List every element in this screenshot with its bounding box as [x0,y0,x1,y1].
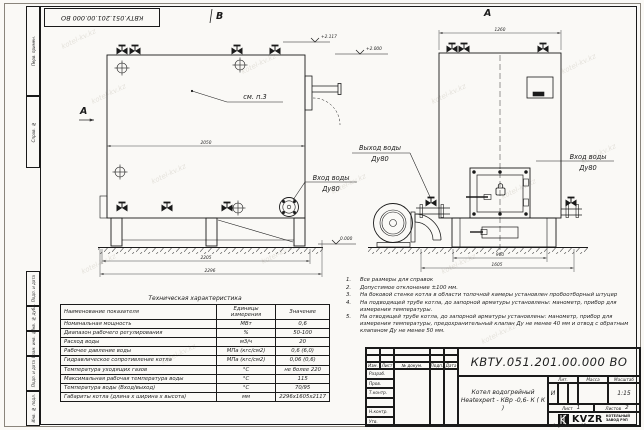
tech-col-units: Единицы измерения [216,305,275,320]
left-view-fittings [113,46,281,216]
dim-1260: 1260 [495,27,506,33]
tech-param: Габариты котла (длина х ширина х высота) [61,392,217,401]
tb-scale-header: Масштаб [608,376,640,383]
view-a-label: A [483,8,491,19]
tech-col-name: Наименование показателя [61,305,217,320]
tb-row-nkontr: Н.контр. [366,407,394,417]
product-name-line2: Heatexpert - КВр -0,6- К ( К ) [459,397,547,413]
ground-lines [98,248,588,255]
sheets-label: Листов [605,406,621,411]
table-row: Максимальная рабочая температура воды°С1… [61,374,330,383]
tech-table-header-row: Наименование показателя Единицы измерени… [61,305,330,320]
table-row: Габариты котла (длина х ширина х высота)… [61,392,330,401]
tb-col-data: Дата [444,362,458,369]
note-item: 3.На боковой стенке котла в области топо… [346,292,632,299]
tech-units: м3/ч [216,338,275,347]
sheets-value: 2 [625,405,629,411]
blower-fan [374,204,442,248]
label-water-outlet: Выход воды Ду80 [352,144,431,199]
tech-value: 50-100 [276,329,330,338]
inlet-left-label-line2: Ду80 [321,185,339,193]
tb-product-name: Котел водогрейный Heatexpert - КВр -0,6-… [458,376,548,426]
tech-param: Гидравлическое сопротивление котла [61,356,217,365]
dim-1605: 1605 [492,262,503,268]
dim-2205: 2205 [201,255,212,261]
table-row: Номинальная мощностьМВт0,6 [61,320,330,329]
tech-units: МВт [216,320,275,329]
title-block: Изм. Лист № докум. Подп. Дата Разраб. Пр… [365,347,641,427]
tech-value: не более 220 [276,365,330,374]
tb-mass-header: Масса [578,376,608,383]
tech-value: 2296х1605х2117 [276,392,330,401]
elev-flue: +2.000 [366,46,382,52]
tech-units: °С [216,365,275,374]
technical-characteristics: Техническая характеристика Наименование … [60,295,330,402]
tech-col-value: Значение [276,305,330,320]
product-name-line1: Котел водогрейный [472,389,535,397]
tb-col-podp: Подп. [430,362,444,369]
format-label: Формат [552,424,570,429]
inlet-right-label-line1: Вход воды [570,153,607,161]
table-row: Гидравлическое сопротивление котлаМПа (к… [61,356,330,365]
label-water-inlet-left: Вход воды Ду80 [293,174,357,200]
table-row: Диапазон рабочего регулирования%50-100 [61,329,330,338]
label-water-inlet-right: Вход воды Ду80 [536,153,614,172]
doc-number: КВТУ.051.201.00.000 ВО [471,355,628,369]
tb-scale-value: 1:15 [608,383,640,404]
inlet-right-label-line2: Ду80 [578,164,596,172]
section-a-label: A [79,106,87,117]
tb-sheet-cell: Лист 1 [548,404,594,412]
note-item: 4.На подводящей трубе котла, до запорной… [346,300,632,314]
tech-param: Температура воды (Вход/выход) [61,383,217,392]
tb-lit-header: Лит. [548,376,578,383]
tech-param: Диапазон рабочего регулирования [61,329,217,338]
tech-units: °С [216,374,275,383]
tb-lit-value: И [548,383,558,404]
company-line2: ЗАВОД РЭП [606,419,630,423]
view-b-label: B [216,11,223,22]
tech-value: 70/95 [276,383,330,392]
tech-param: Номинальная мощность [61,320,217,329]
tb-sheets-cell: Листов 2 [594,404,640,412]
note-number: 2. [346,285,355,292]
format-note: Формат А3 [552,424,586,429]
dim-2050: 2050 [201,140,212,146]
tb-col-izm: Изм. [366,362,380,369]
tech-value: 0,6 (6,0) [276,347,330,356]
note-number: 3. [346,292,355,299]
dim-960: 960 [496,252,504,258]
tech-param: Температура уходящих газов [61,365,217,374]
tech-value: 0,6 [276,320,330,329]
tb-row-tkontr: Т.контр. [366,388,394,398]
tb-col-list: Лист [380,362,394,369]
tech-param: Максимальная рабочая температура воды [61,374,217,383]
inlet-left-label-line1: Вход воды [313,174,350,182]
format-value: А3 [580,424,586,429]
table-row: Температура воды (Вход/выход)°С70/95 [61,383,330,392]
tb-col-dokum: № докум. [394,362,430,369]
tech-value: 20 [276,338,330,347]
tech-units: мм [216,392,275,401]
elev-ground: 0.000 [340,236,353,242]
tech-units: °С [216,383,275,392]
note-text: Все размеры для справок [360,277,632,284]
note-number: 5. [346,314,355,335]
note-item: 2.Допустимое отклонение ±100 мм. [346,285,632,292]
sheet-label: Лист [562,406,573,411]
tech-value: 115 [276,374,330,383]
drawing-sheet: kotel-kv.kz kotel-kv.kz kotel-kv.kz kote… [0,0,644,430]
table-row: Температура уходящих газов°Сне более 220 [61,365,330,374]
tech-units: МПа (кгс/см2) [216,347,275,356]
table-row: Расход водым3/ч20 [61,338,330,347]
tb-row-prov: Пров. [366,379,394,389]
sheet-value: 1 [577,405,581,411]
tech-value: 0,06 (0,6) [276,356,330,365]
tb-doc-number-cell: КВТУ.051.201.00.000 ВО [458,348,640,376]
note-item: 5.На отводящей трубе котла, до запорной … [346,314,632,335]
padlock-icon [496,184,505,195]
note-text: На отводящей трубе котла, до запорной ар… [360,314,632,335]
note-number: 1. [346,277,355,284]
right-view-fittings [426,44,577,207]
tech-table: Наименование показателя Единицы измерени… [60,304,330,402]
right-view-front [416,53,582,250]
notes-list: 1.Все размеры для справок 2.Допустимое о… [346,277,632,336]
tech-units: % [216,329,275,338]
left-view-side [100,55,341,246]
note-text: На подводящей трубе котла, до запорной а… [360,300,632,314]
dim-2296: 2296 [205,268,216,274]
tech-table-title: Техническая характеристика [60,295,330,302]
note-text: На боковой стенке котла в области топочн… [360,292,632,299]
outlet-label-line1: Выход воды [359,144,401,152]
elev-top: +2.117 [321,34,337,40]
tech-param: Расход воды [61,338,217,347]
note-item: 1.Все размеры для справок [346,277,632,284]
elevation-marks [283,42,388,244]
outlet-label-line2: Ду80 [370,155,388,163]
callout-see-note: см. п.3 [191,90,283,102]
note-number: 4. [346,300,355,314]
table-row: Рабочее давление водыМПа (кгс/см2)0,6 (6… [61,347,330,356]
tech-param: Рабочее давление воды [61,347,217,356]
tb-mass-value [578,383,608,404]
tech-units: МПа (кгс/см2) [216,356,275,365]
tb-row-utv: Утв. [366,417,394,427]
tb-row-razrab: Разраб. [366,369,394,379]
note-text: Допустимое отклонение ±100 мм. [360,285,632,292]
tb-row-empty [366,398,394,408]
see-note-text: см. п.3 [243,93,266,101]
